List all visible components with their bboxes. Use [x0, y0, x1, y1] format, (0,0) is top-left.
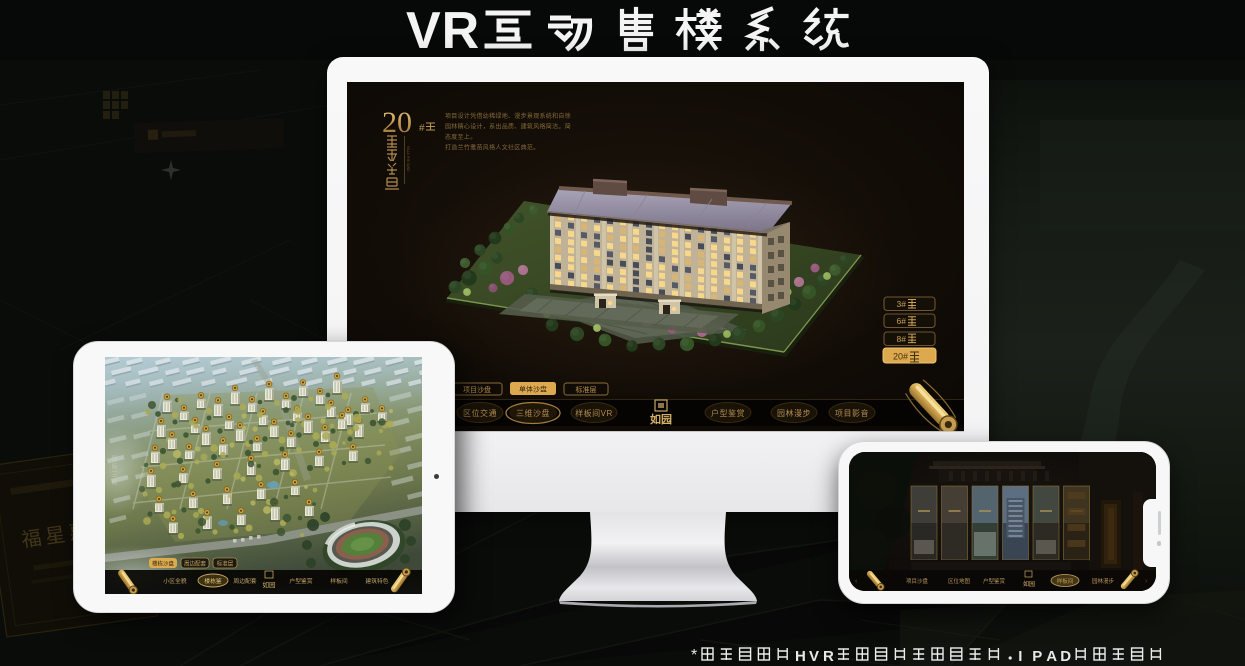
svg-text:项目沙盘: 项目沙盘 — [463, 385, 491, 394]
svg-text:打造兰竹雅苗风格人文社区典范。: 打造兰竹雅苗风格人文社区典范。 — [445, 144, 540, 152]
svg-text:单体沙盘: 单体沙盘 — [519, 385, 547, 394]
svg-text:如园: 如园 — [1023, 580, 1035, 588]
svg-text:6#: 6# — [897, 316, 907, 326]
svg-text:P: P — [1032, 648, 1042, 665]
svg-text:#: # — [419, 123, 425, 134]
svg-text:户型鉴赏: 户型鉴赏 — [289, 577, 312, 585]
svg-text:如园: 如园 — [650, 412, 672, 426]
svg-text:R: R — [823, 648, 834, 665]
svg-text:样板间: 样板间 — [330, 577, 348, 585]
svg-text:H: H — [795, 648, 806, 665]
svg-text:楼栋鉴: 楼栋鉴 — [204, 577, 222, 585]
svg-text:小区全貌: 小区全貌 — [163, 577, 186, 585]
svg-text:国际三街: 国际三街 — [110, 455, 117, 487]
svg-text:项目设计凭借幼稀绿地、漫步景观系统和自徐: 项目设计凭借幼稀绿地、漫步景观系统和自徐 — [445, 112, 571, 120]
svg-text:项目影音: 项目影音 — [835, 408, 869, 418]
svg-text:园林漫步: 园林漫步 — [777, 408, 811, 418]
svg-text:*: * — [691, 647, 697, 664]
svg-text:8#: 8# — [897, 334, 907, 344]
svg-text:I: I — [1018, 648, 1022, 665]
svg-text:20#: 20# — [893, 352, 908, 362]
svg-text:周边配套: 周边配套 — [233, 577, 256, 585]
svg-text:标准层: 标准层 — [217, 560, 234, 568]
svg-text:户型鉴赏: 户型鉴赏 — [983, 577, 1006, 585]
svg-text:区位交通: 区位交通 — [463, 408, 497, 418]
svg-text:三维沙盘: 三维沙盘 — [516, 408, 550, 418]
svg-text:20: 20 — [382, 106, 412, 139]
svg-text:VILLA THE SAND: VILLA THE SAND — [406, 146, 410, 172]
svg-text:VR: VR — [406, 2, 480, 60]
svg-text:区位地图: 区位地图 — [948, 577, 971, 585]
svg-text:态度至上。: 态度至上。 — [445, 133, 477, 141]
svg-text:样板间VR: 样板间VR — [575, 408, 613, 418]
svg-text:A: A — [1046, 648, 1057, 665]
svg-text:楼栋沙盘: 楼栋沙盘 — [152, 560, 175, 568]
svg-text:如园: 如园 — [263, 580, 276, 589]
svg-text:3#: 3# — [897, 299, 907, 309]
svg-text:园林精心设计，系出品质、建筑风格简洁。简: 园林精心设计，系出品质、建筑风格简洁。简 — [445, 123, 571, 131]
svg-text:D: D — [1060, 648, 1071, 665]
svg-text:建筑特色: 建筑特色 — [365, 577, 388, 585]
svg-text:标准层: 标准层 — [576, 385, 597, 394]
svg-text:项目沙盘: 项目沙盘 — [906, 577, 929, 585]
svg-text:园林漫步: 园林漫步 — [1092, 577, 1115, 585]
svg-text:户型鉴赏: 户型鉴赏 — [711, 408, 745, 418]
svg-text:V: V — [809, 648, 819, 665]
svg-text:周边配套: 周边配套 — [184, 560, 207, 568]
